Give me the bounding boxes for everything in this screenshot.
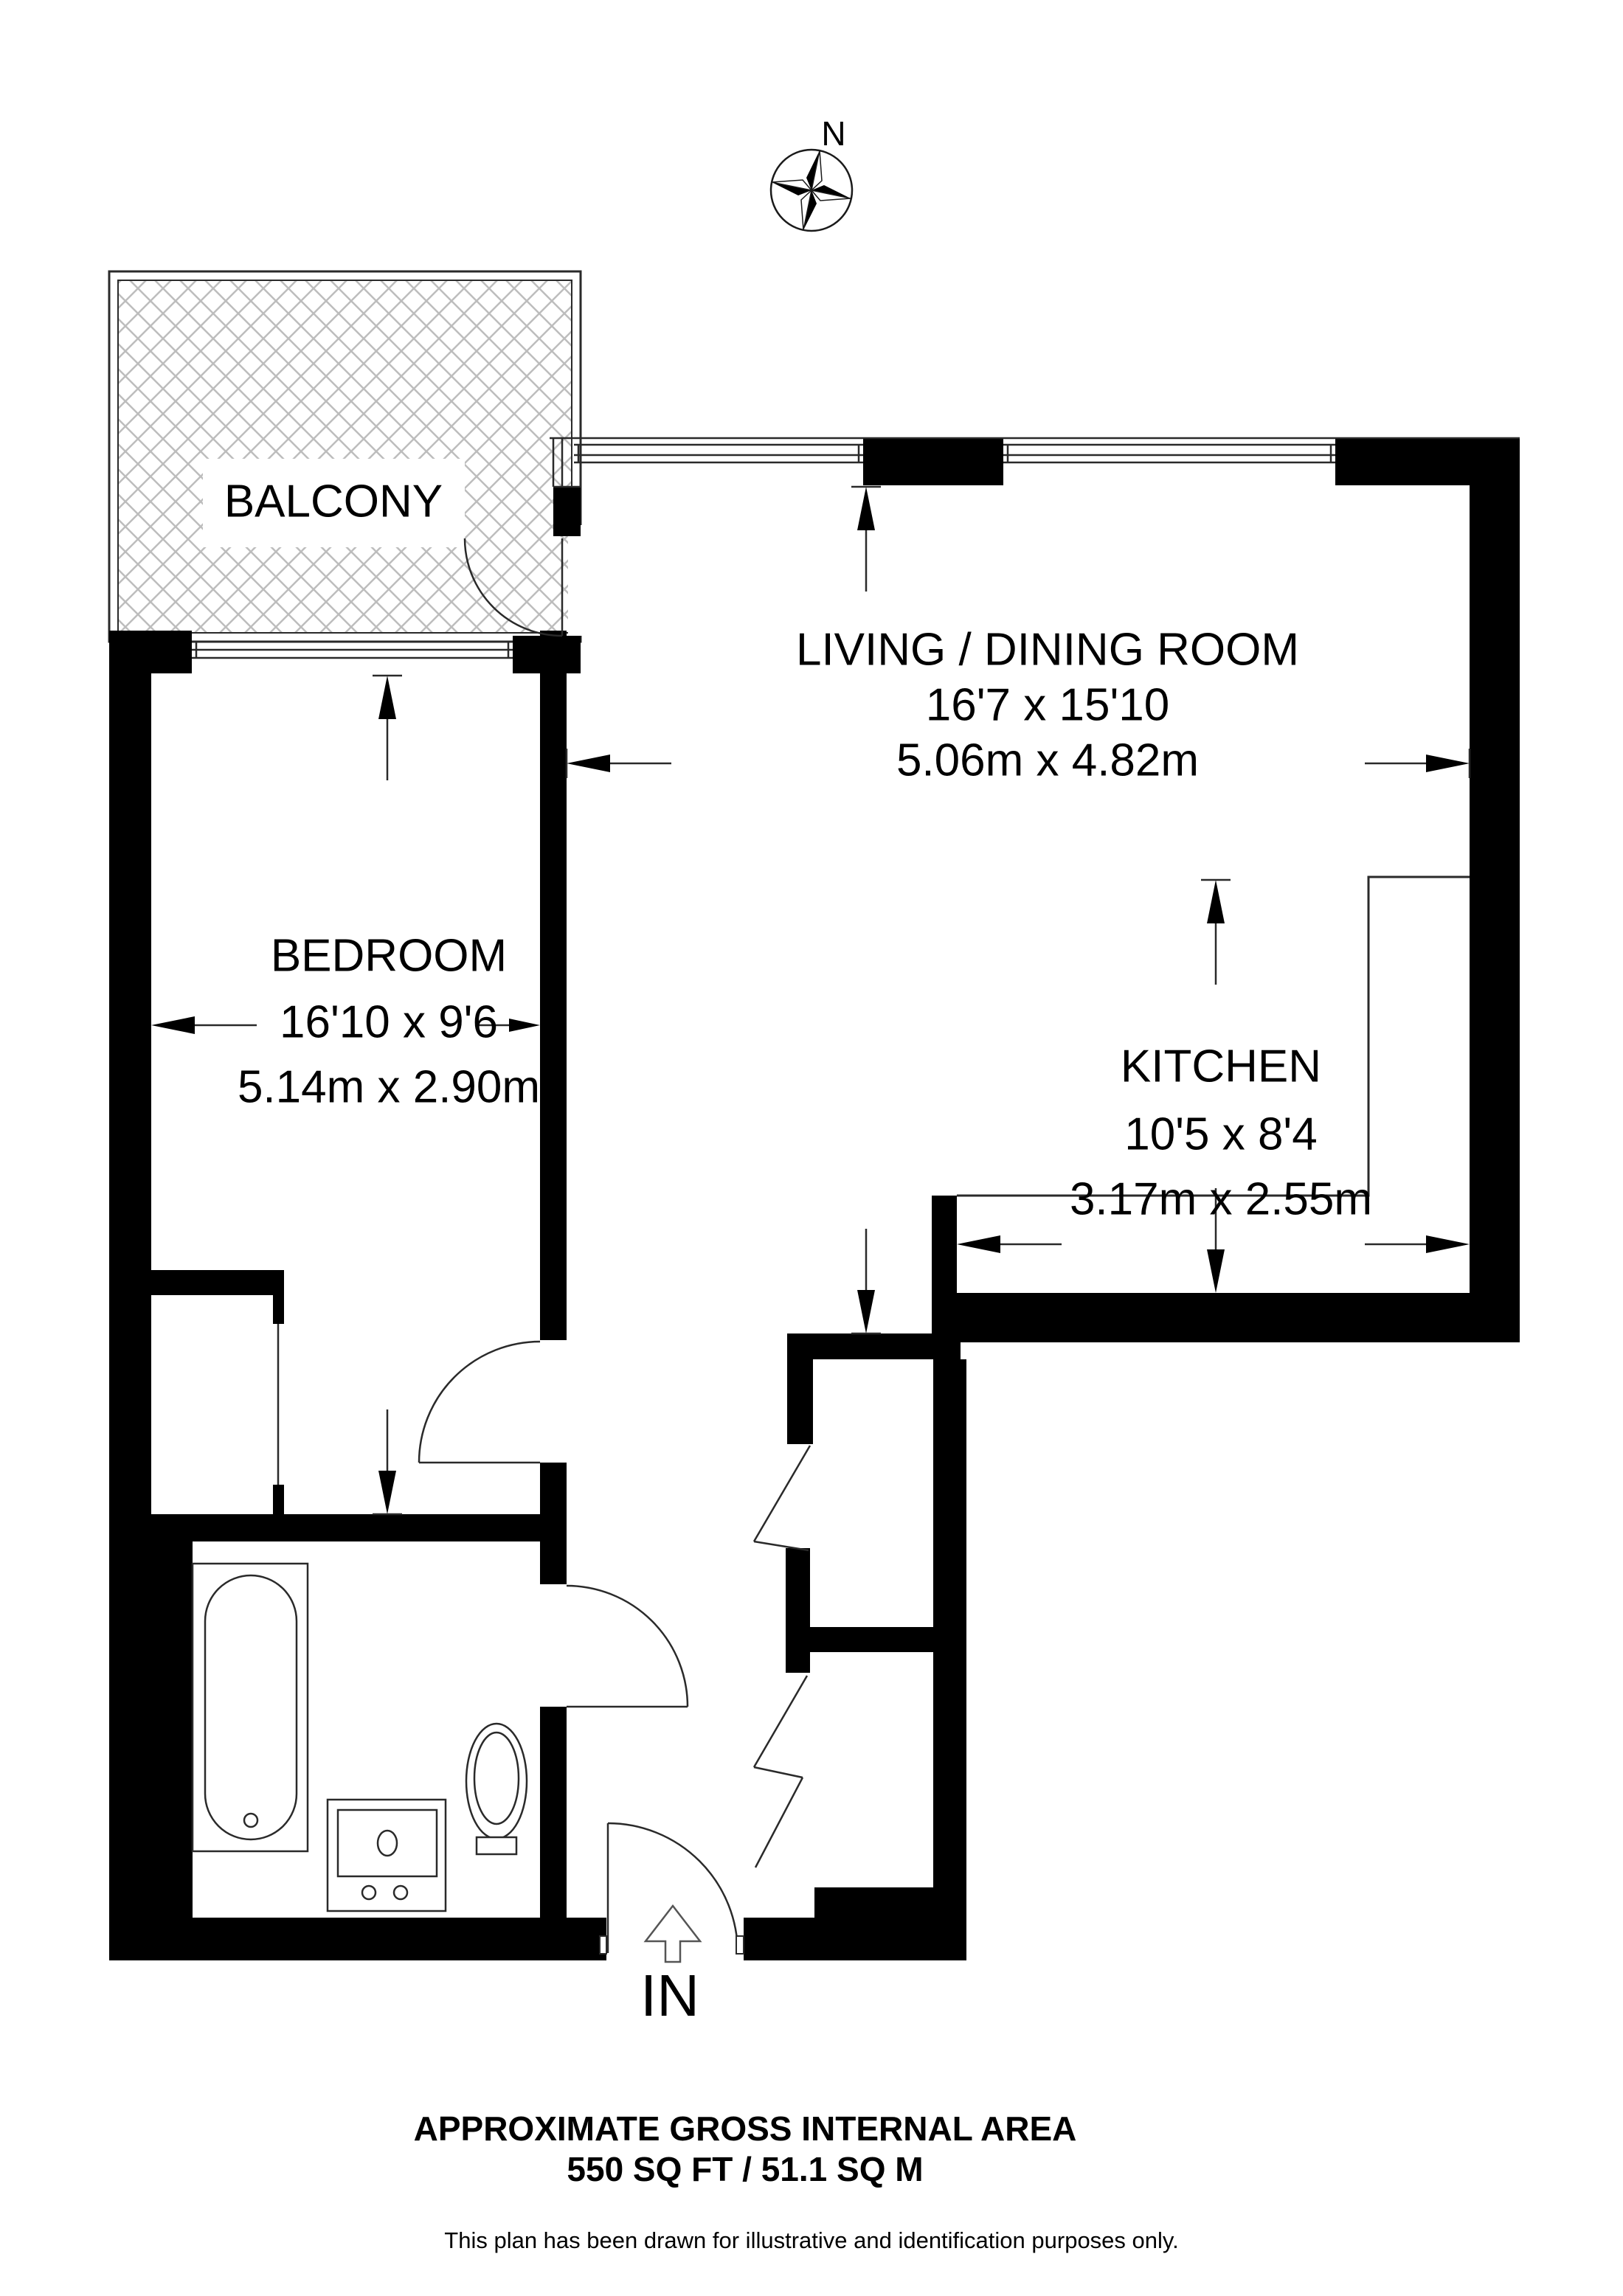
entrance-arrow-icon [646, 1906, 700, 1962]
compass-rose: N [771, 114, 852, 231]
kitchen-dim-metric: 3.17m x 2.55m [1070, 1173, 1372, 1224]
living-window-1 [574, 445, 863, 462]
closet1-bifold-door [754, 1446, 810, 1550]
wall-top-pier [863, 437, 1003, 485]
wall-closet2-bottom [814, 1887, 966, 1918]
wall-bedroom-right-lower [540, 1463, 567, 1541]
kitchen-dim-imperial: 10'5 x 8'4 [1124, 1109, 1318, 1159]
living-room-label: LIVING / DINING ROOM [796, 624, 1299, 675]
entrance-in-label: IN [640, 1963, 699, 2028]
balcony-label: BALCONY [224, 476, 443, 527]
wall-window-pier-left [109, 631, 192, 673]
bedroom-dim-imperial: 16'10 x 9'6 [280, 996, 498, 1047]
bathroom-door [567, 1586, 688, 1707]
bathroom-fixtures [193, 1564, 527, 1911]
footer-area-title: APPROXIMATE GROSS INTERNAL AREA [414, 2109, 1077, 2148]
wall-left-bathroom [109, 1541, 193, 1918]
living-dim-vertical [851, 487, 881, 1333]
balcony-door-opening [568, 525, 584, 636]
entrance-jamb-left [600, 1936, 606, 1954]
compass-north-label: N [821, 114, 845, 153]
bathtub [193, 1564, 308, 1851]
bedroom-window [192, 642, 513, 658]
living-room-dim-metric: 5.06m x 4.82m [896, 735, 1199, 785]
bedroom-door [419, 1342, 540, 1463]
vanity-sink [328, 1800, 446, 1911]
floorplan-drawing: N BALCONY [0, 0, 1623, 2296]
wall-wardrobe-stub-top [273, 1295, 284, 1324]
wall-closet-divider [810, 1627, 938, 1652]
footer-disclaimer: This plan has been drawn for illustrativ… [444, 2227, 1178, 2253]
wall-bottom-left [109, 1918, 606, 1960]
balcony: BALCONY [109, 271, 584, 642]
wall-left-bedroom [109, 673, 151, 1541]
bedroom-label: BEDROOM [271, 930, 507, 981]
wall-top-right-corner [1335, 437, 1520, 485]
kitchen-label: KITCHEN [1121, 1041, 1321, 1092]
toilet [466, 1724, 527, 1854]
living-room-dim-imperial: 16'7 x 15'10 [926, 679, 1170, 730]
floorplan-page: N BALCONY [0, 0, 1623, 2296]
sink-drain [378, 1831, 397, 1856]
toilet-base [477, 1837, 516, 1854]
wall-bedroom-bottom [109, 1514, 540, 1541]
wall-kitchen-left-stub [932, 1196, 957, 1293]
wall-closet1-left-upper [787, 1359, 813, 1444]
wall-hall-top [787, 1333, 961, 1359]
wall-bottom-right [744, 1918, 966, 1960]
wall-window-pier-right [513, 636, 581, 673]
wall-wardrobe-top [151, 1270, 284, 1295]
wall-bath-hall-upper-stub [540, 1541, 567, 1584]
closet2-bifold-door [754, 1676, 807, 1867]
wall-closet-left-mid [786, 1548, 810, 1673]
wall-balcony-living-stub [553, 487, 581, 536]
vanity-knob-left [362, 1886, 376, 1899]
wall-kitchen-bottom [932, 1293, 1520, 1342]
wall-right [1470, 485, 1520, 1342]
balcony-hatch [118, 280, 572, 633]
wall-bedroom-right-upper [540, 631, 567, 1340]
living-window-2 [1003, 445, 1335, 462]
entrance-jamb-right [736, 1936, 744, 1954]
bathtub-drain [244, 1814, 257, 1827]
wall-wardrobe-stub-bottom [273, 1485, 284, 1514]
footer-area-value: 550 SQ FT / 51.1 SQ M [567, 2150, 923, 2188]
wall-hall-right [933, 1359, 966, 1918]
wall-bath-hall-lower [540, 1707, 567, 1918]
bedroom-dim-metric: 5.14m x 2.90m [238, 1061, 540, 1112]
vanity-knob-right [394, 1886, 407, 1899]
